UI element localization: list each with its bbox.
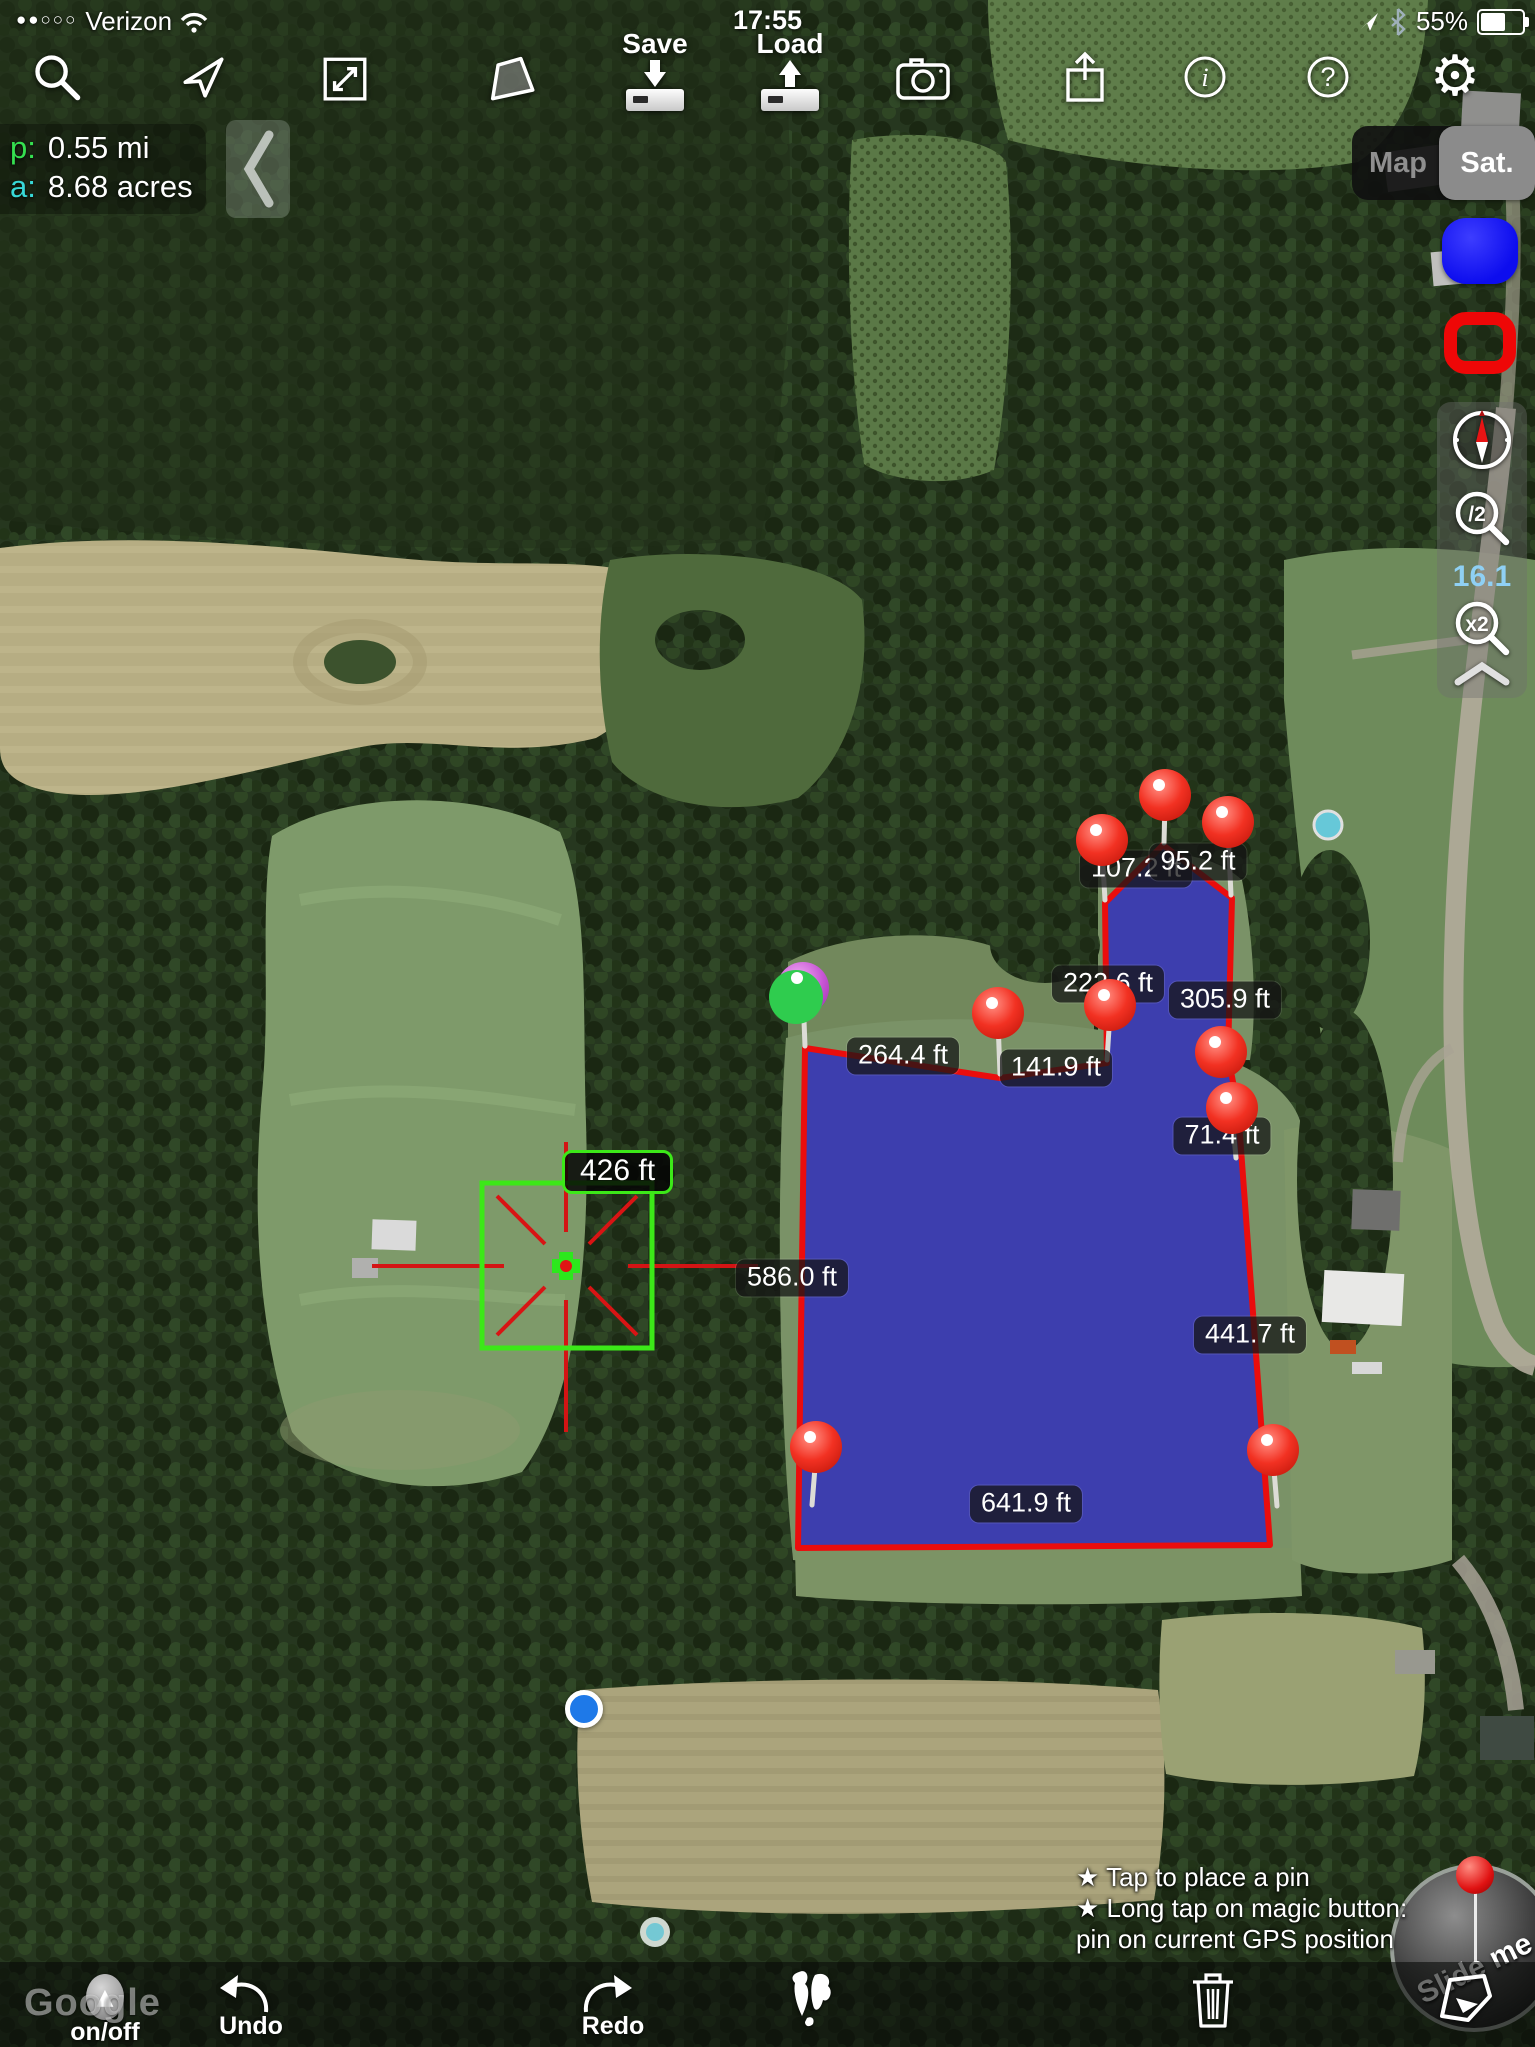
undo-label: Undo (216, 2014, 286, 2038)
area-key: a: (10, 169, 36, 204)
google-watermark: Google (24, 1982, 161, 2025)
save-label: Save (610, 28, 700, 60)
map-pin-red[interactable] (790, 1421, 842, 1473)
pin-mode-button[interactable] (1438, 1972, 1494, 2024)
globe-icon (777, 1968, 837, 2034)
distance-label: 441.7 ft (1194, 1317, 1306, 1354)
distance-label: 264.4 ft (847, 1038, 959, 1075)
location-services-icon (1358, 11, 1380, 33)
compass[interactable] (1437, 408, 1527, 472)
battery-icon (1477, 9, 1525, 35)
load-drive-icon (761, 89, 819, 111)
gear-icon: ⚙ (1430, 49, 1480, 105)
zoom-in-button[interactable]: x2 (1437, 598, 1527, 660)
share-button[interactable] (1055, 46, 1115, 108)
globe-button[interactable] (777, 1968, 837, 2034)
area-value: 8.68 acres (48, 169, 193, 204)
battery-percent: 55% (1416, 6, 1468, 37)
undo-arrow-icon (216, 1970, 274, 2014)
map-pin-purple[interactable] (777, 962, 829, 1014)
trash-icon (1188, 1968, 1238, 2032)
collapse-panel-button[interactable] (1437, 660, 1527, 688)
redo-label: Redo (578, 2014, 648, 2038)
map-type-toggle: Map Sat. (1352, 126, 1535, 200)
load-button[interactable]: Load (745, 28, 835, 111)
perimeter-key: p: (10, 130, 36, 165)
map-pin-red[interactable] (1195, 1026, 1247, 1078)
zoom-out-button[interactable]: /2 (1437, 488, 1527, 550)
measure-mode-button[interactable] (315, 46, 375, 108)
zoom-out-label: /2 (1468, 503, 1486, 526)
redo-arrow-icon (578, 1970, 636, 2014)
search-button[interactable] (27, 46, 87, 108)
collapse-readout-handle[interactable] (226, 120, 290, 218)
hint-box: ★ Tap to place a pin ★ Long tap on magic… (1076, 1862, 1416, 1955)
svg-text:i: i (1201, 63, 1208, 92)
zoom-level-value: 16.1 (1437, 560, 1527, 594)
load-label: Load (745, 28, 835, 60)
measurement-readout: p:0.55 mi a:8.68 acres (0, 124, 206, 214)
polygon-tool-button[interactable] (480, 46, 540, 108)
sat-option[interactable]: Sat. (1439, 126, 1535, 200)
map-pin-red[interactable] (972, 987, 1024, 1039)
undo-button[interactable]: Undo (216, 1970, 286, 2038)
bottom-toolbar: ▲ on/off Undo Redo (0, 1962, 1535, 2047)
save-drive-icon (626, 89, 684, 111)
zoom-in-label: x2 (1465, 613, 1488, 636)
bluetooth-icon (1389, 7, 1407, 37)
zoom-control-panel: /2 16.1 x2 (1437, 402, 1527, 698)
map-pin-red[interactable] (1202, 796, 1254, 848)
redo-button[interactable]: Redo (578, 1970, 648, 2038)
distance-label: 95.2 ft (1149, 844, 1246, 881)
map-pin-red[interactable] (1247, 1424, 1299, 1476)
hint-line-3: pin on current GPS position (1076, 1924, 1416, 1955)
hint-line-2: ★ Long tap on magic button: (1076, 1893, 1416, 1924)
save-button[interactable]: Save (610, 28, 700, 111)
map-pin-red[interactable] (1139, 769, 1191, 821)
map-pin-red[interactable] (1076, 814, 1128, 866)
compass-icon (1450, 408, 1514, 472)
chevron-up-icon (1450, 660, 1514, 688)
distance-label: 305.9 ft (1169, 982, 1281, 1019)
annotation-layer: 107.2 ft95.2 ft222.6 ft305.9 ft264.4 ft1… (0, 0, 1535, 2047)
perimeter-value: 0.55 mi (48, 130, 150, 165)
info-button[interactable]: i (1175, 46, 1235, 108)
pin-flag-icon (1438, 1972, 1494, 2024)
svg-text:?: ? (1320, 62, 1335, 92)
help-button[interactable]: ? (1298, 46, 1358, 108)
map-option[interactable]: Map (1352, 126, 1444, 200)
hint-line-1: ★ Tap to place a pin (1076, 1862, 1416, 1893)
gps-location-dot (565, 1690, 603, 1728)
map-pin-red[interactable] (1084, 979, 1136, 1031)
blue-pin-style-button[interactable] (1442, 218, 1518, 284)
distance-label: 586.0 ft (736, 1260, 848, 1297)
red-outline-style-button[interactable] (1444, 312, 1516, 374)
map-pin-red[interactable] (1206, 1082, 1258, 1134)
chevron-left-icon (237, 127, 279, 211)
distance-label: 641.9 ft (970, 1486, 1082, 1523)
delete-button[interactable] (1188, 1968, 1238, 2032)
settings-button[interactable]: ⚙ (1425, 46, 1485, 108)
slide-pin-knob[interactable] (1456, 1856, 1494, 1894)
square-side-label: 426 ft (562, 1150, 673, 1194)
distance-label: 141.9 ft (1000, 1050, 1112, 1087)
camera-button[interactable] (893, 46, 953, 108)
app-screen: 107.2 ft95.2 ft222.6 ft305.9 ft264.4 ft1… (0, 0, 1535, 2047)
locate-button[interactable] (173, 46, 233, 108)
